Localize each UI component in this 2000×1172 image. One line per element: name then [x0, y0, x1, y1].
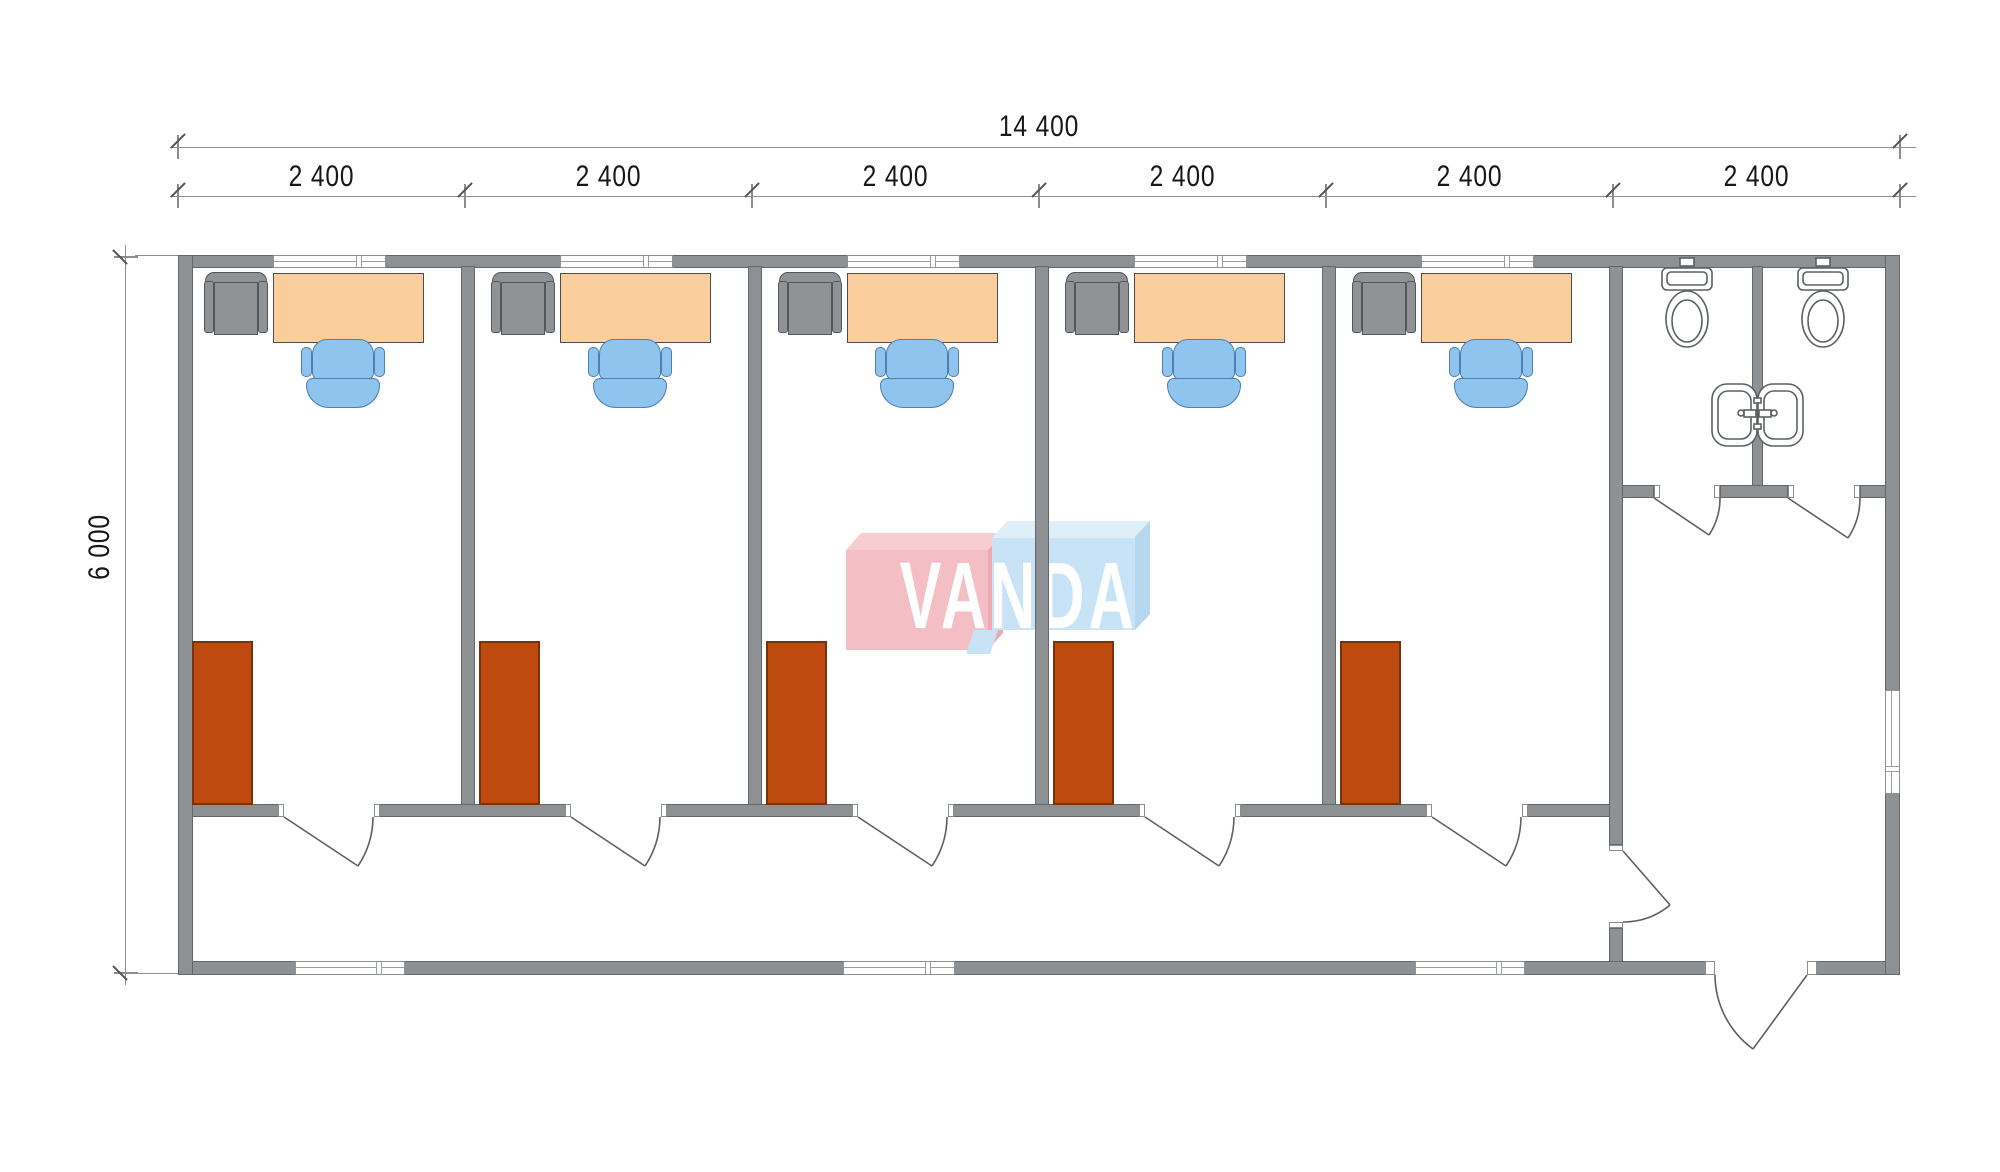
- door-office-5: [1432, 817, 1521, 866]
- door-entrance: [1715, 975, 1807, 1049]
- toilet-icon: [1662, 258, 1712, 347]
- door-office-2: [571, 817, 660, 866]
- door-office-1: [284, 817, 373, 866]
- door-stall-1: [1654, 498, 1720, 535]
- door-office-3: [858, 817, 947, 866]
- doors-and-fixtures-layer: [0, 0, 2000, 1172]
- door-stall-2: [1788, 498, 1860, 538]
- door-hall: [1623, 851, 1670, 922]
- floor-plan: 14 400 2 400 2 400 2 400 2 400 2 400 2 4…: [0, 0, 2000, 1172]
- toilet-icon: [1798, 258, 1848, 347]
- door-office-4: [1145, 817, 1234, 866]
- washbasin-icon: [1712, 384, 1803, 446]
